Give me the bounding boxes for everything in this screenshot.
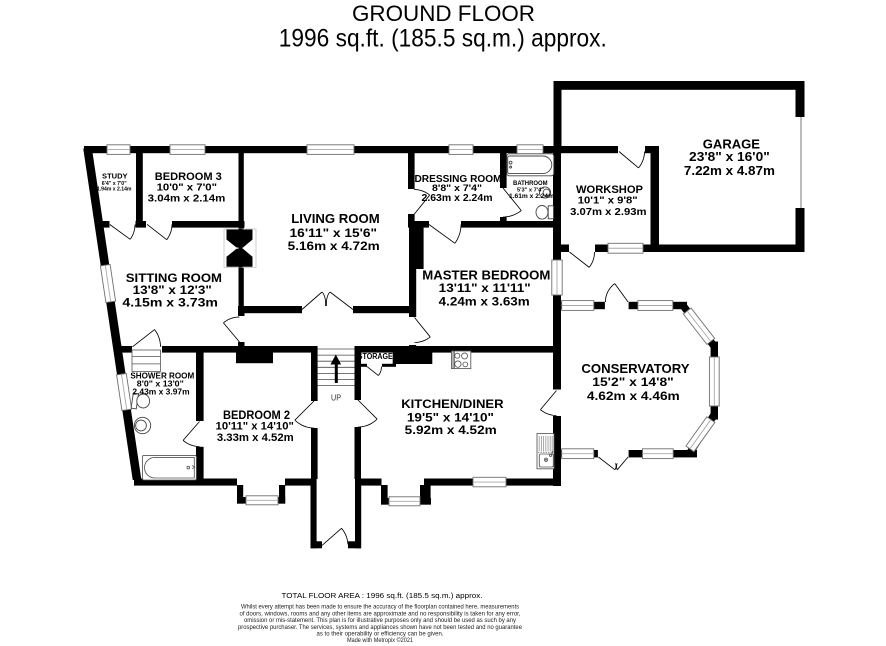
svg-text:15'2" x 14'8": 15'2" x 14'8" <box>592 375 674 389</box>
svg-text:1.61m x 2.24m: 1.61m x 2.24m <box>509 193 555 200</box>
svg-text:1996 sq.ft. (185.5 sq.m.) appr: 1996 sq.ft. (185.5 sq.m.) approx. <box>279 25 607 53</box>
svg-text:16'11" x 15'6": 16'11" x 15'6" <box>290 226 378 240</box>
svg-text:CONSERVATORY: CONSERVATORY <box>581 361 690 376</box>
svg-text:8'8" x 7'4": 8'8" x 7'4" <box>432 183 482 193</box>
svg-text:4.62m x 4.46m: 4.62m x 4.46m <box>587 389 680 403</box>
svg-text:LIVING ROOM: LIVING ROOM <box>291 212 380 226</box>
svg-text:23'8" x 16'0": 23'8" x 16'0" <box>689 150 770 164</box>
svg-text:BATHROOM: BATHROOM <box>513 180 548 187</box>
svg-text:13'11" x 11'11": 13'11" x 11'11" <box>439 281 531 295</box>
svg-text:5.92m x 4.52m: 5.92m x 4.52m <box>405 423 497 437</box>
svg-text:STORAGE: STORAGE <box>358 352 394 361</box>
svg-text:KITCHEN/DINER: KITCHEN/DINER <box>401 397 503 411</box>
svg-text:2.43m x 3.97m: 2.43m x 3.97m <box>132 387 189 397</box>
svg-text:7.22m x 4.87m: 7.22m x 4.87m <box>684 163 775 178</box>
svg-text:TOTAL FLOOR AREA : 1996 sq.ft.: TOTAL FLOOR AREA : 1996 sq.ft. (185.5 sq… <box>282 591 483 600</box>
svg-text:Made with Metropix ©2021: Made with Metropix ©2021 <box>347 637 414 644</box>
svg-text:3.07m x 2.93m: 3.07m x 2.93m <box>570 206 646 218</box>
svg-text:5.16m x 4.72m: 5.16m x 4.72m <box>288 239 380 253</box>
svg-text:UP: UP <box>331 393 341 402</box>
svg-text:4.15m x 3.73m: 4.15m x 3.73m <box>122 296 218 310</box>
svg-text:4.24m x 3.63m: 4.24m x 3.63m <box>439 294 530 308</box>
svg-text:10'1" x 9'8": 10'1" x 9'8" <box>578 195 638 207</box>
svg-text:3.04m x 2.14m: 3.04m x 2.14m <box>148 192 226 204</box>
svg-text:1.94m x 2.14m: 1.94m x 2.14m <box>97 186 132 192</box>
svg-text:2.63m x 2.24m: 2.63m x 2.24m <box>422 193 493 204</box>
svg-text:3.33m x 4.52m: 3.33m x 4.52m <box>217 432 294 444</box>
svg-text:STUDY: STUDY <box>102 173 128 180</box>
svg-text:GROUND FLOOR: GROUND FLOOR <box>352 1 535 26</box>
